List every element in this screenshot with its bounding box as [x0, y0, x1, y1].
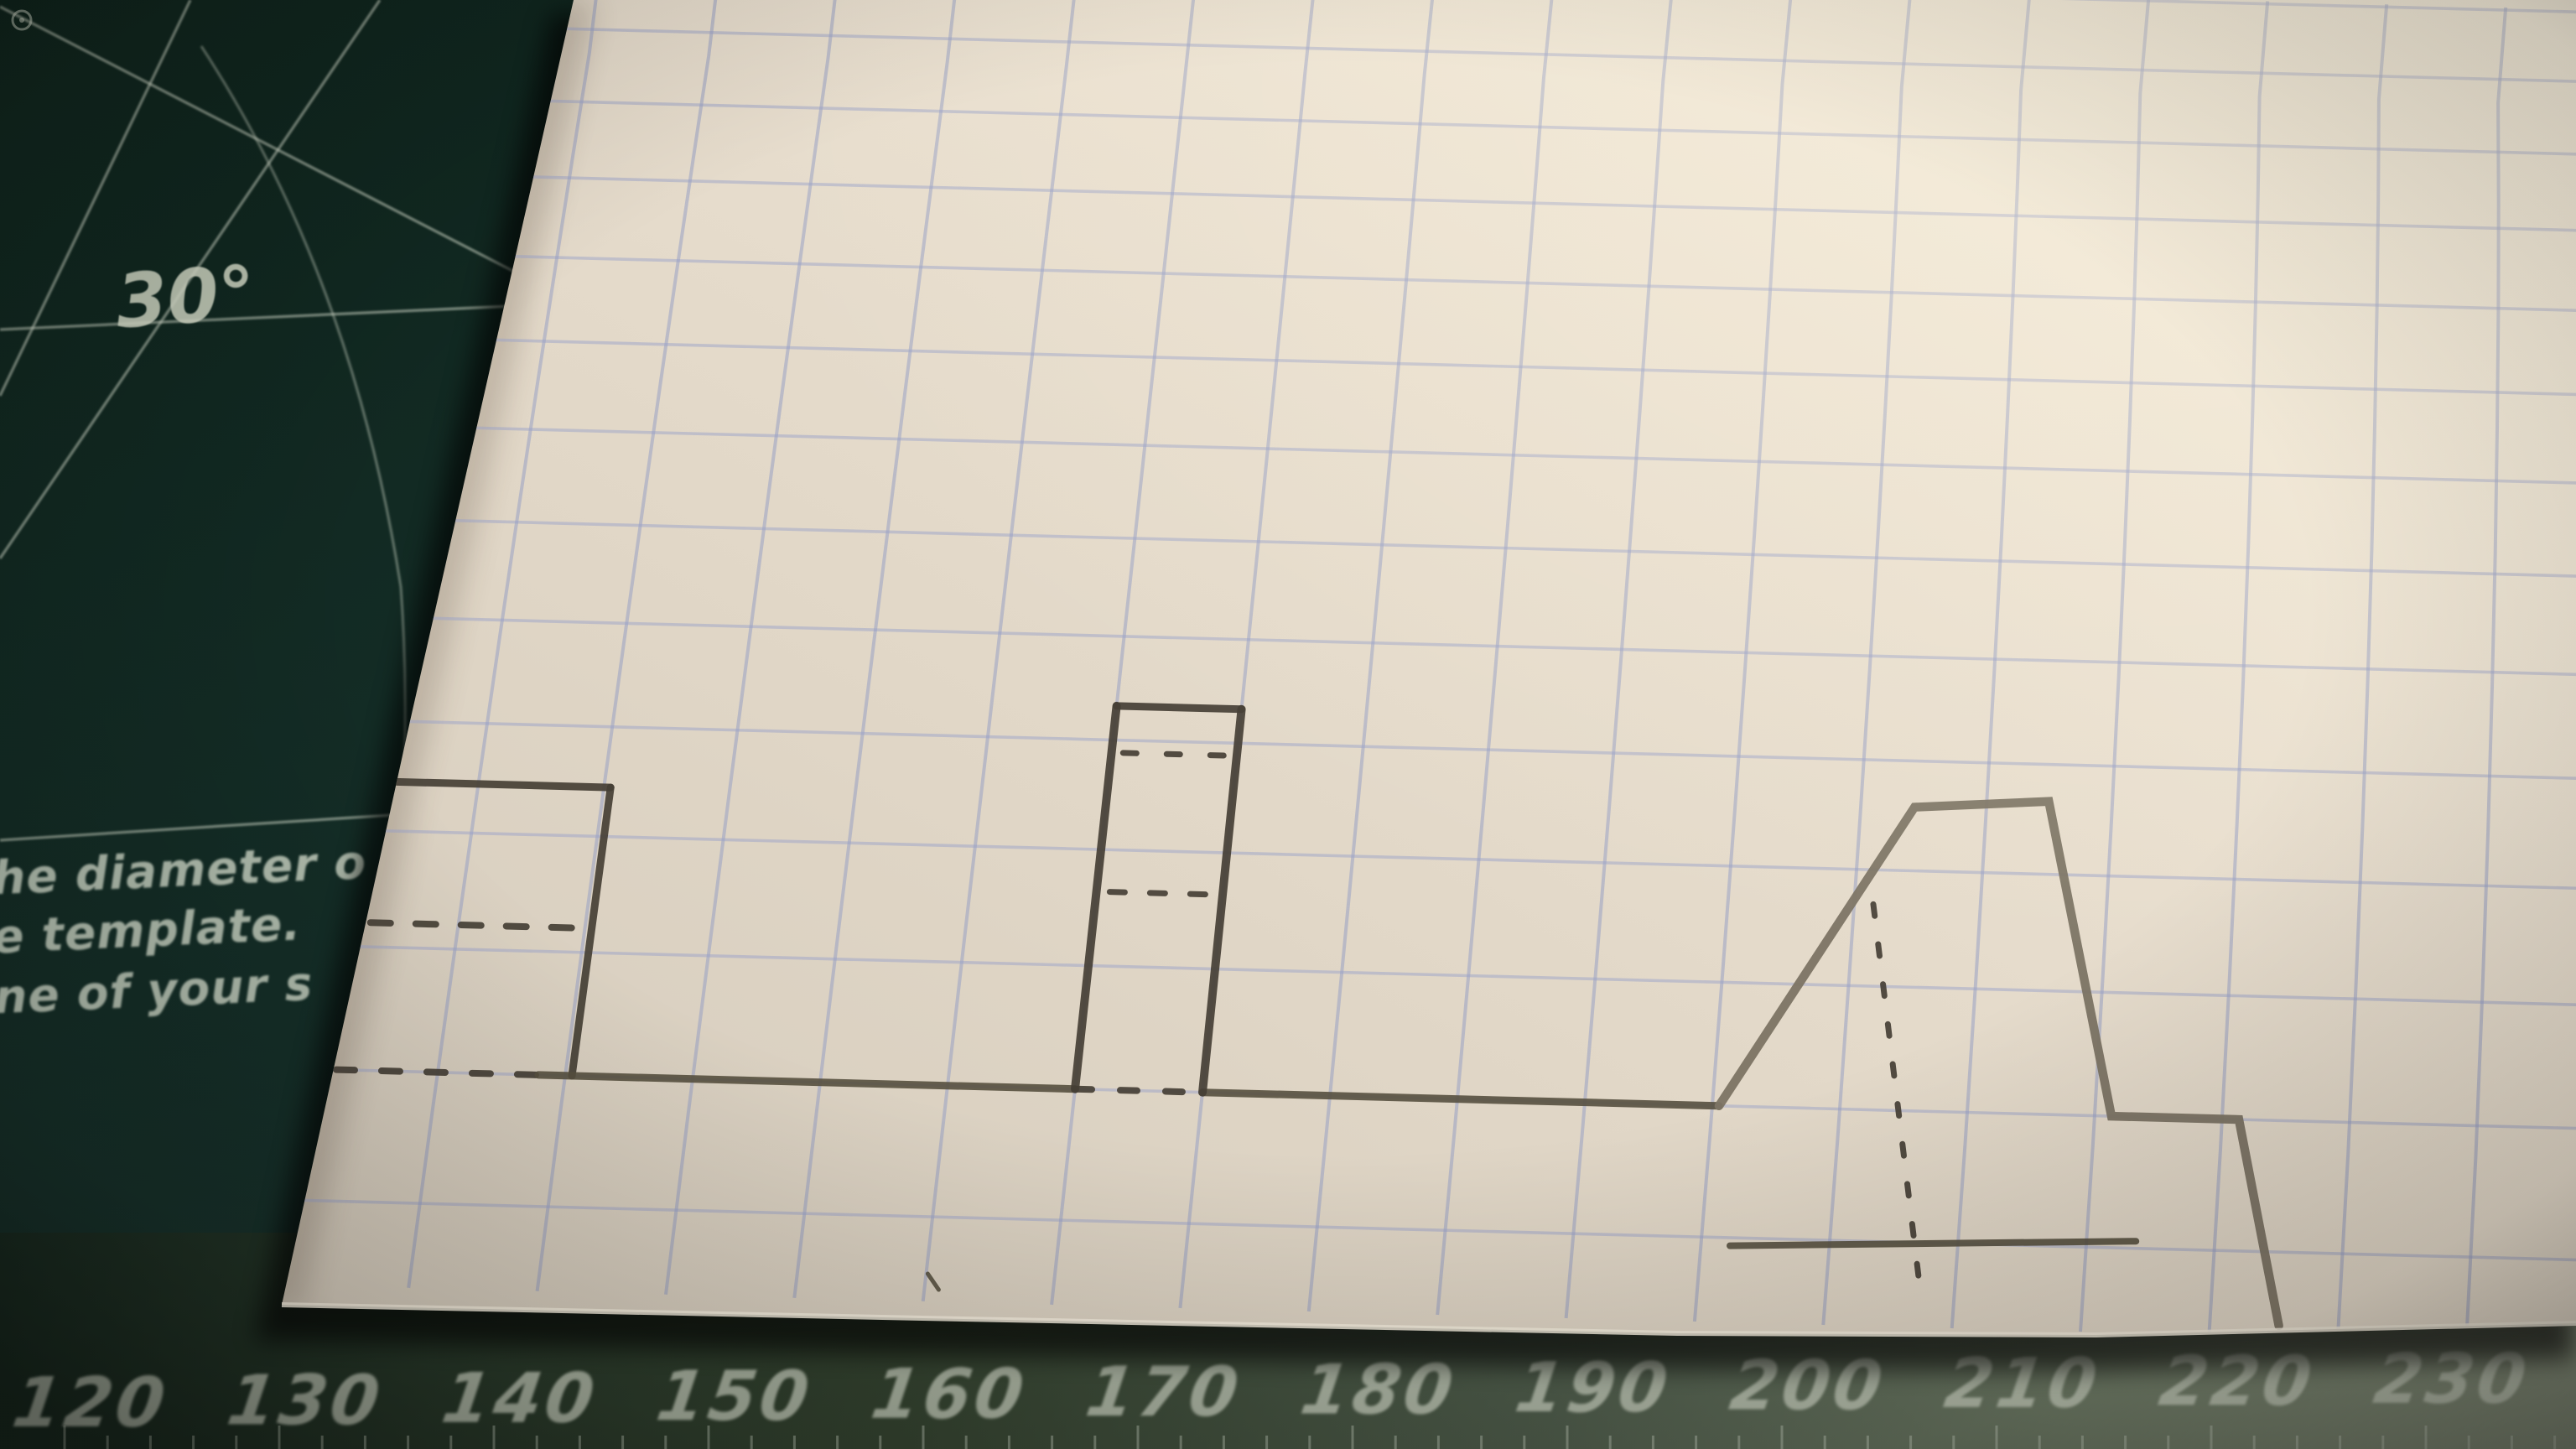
- vignette-overlay: [0, 0, 2576, 1449]
- scene-svg: 30° he diameter o e template. ne of your…: [0, 0, 2576, 1449]
- photo-graph-paper-on-cutting-mat: 30° he diameter o e template. ne of your…: [0, 0, 2576, 1449]
